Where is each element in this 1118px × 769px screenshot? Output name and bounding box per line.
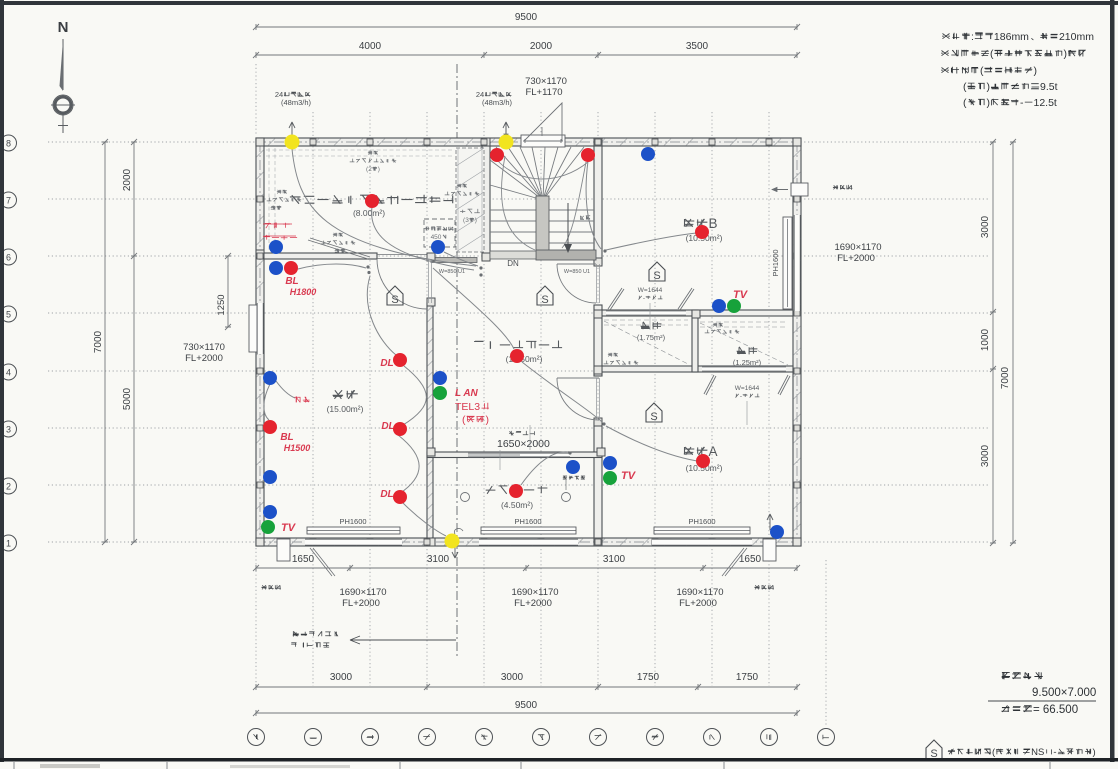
- svg-text:DL: DL: [380, 489, 393, 500]
- svg-text:FL+2000: FL+2000: [514, 598, 552, 609]
- svg-text:9.500×7.000: 9.500×7.000: [1032, 687, 1096, 699]
- svg-text:9500: 9500: [515, 12, 538, 23]
- svg-text:FL+2000: FL+2000: [342, 598, 380, 609]
- svg-text:(1.25m²): (1.25m²): [733, 358, 762, 367]
- svg-text:BL: BL: [280, 432, 293, 443]
- svg-text:1690×1170: 1690×1170: [834, 242, 881, 253]
- svg-text:9.5t: 9.5t: [1040, 81, 1058, 93]
- svg-text:(48m3/h): (48m3/h): [281, 98, 312, 107]
- svg-text:= 66.500: = 66.500: [1033, 704, 1078, 716]
- svg-text:7000: 7000: [1000, 366, 1011, 389]
- svg-text:3000: 3000: [501, 672, 524, 683]
- svg-text:PH1600: PH1600: [339, 517, 366, 526]
- svg-text:(1.75m²): (1.75m²): [637, 333, 666, 342]
- svg-text:PH1600: PH1600: [771, 249, 780, 276]
- svg-text:H1500: H1500: [284, 443, 311, 453]
- svg-text:1750: 1750: [736, 672, 759, 683]
- svg-text:-: -: [1053, 747, 1056, 758]
- svg-text:TV: TV: [621, 470, 637, 482]
- svg-text:1: 1: [6, 539, 11, 549]
- svg-text:W=850 U1: W=850 U1: [439, 269, 465, 275]
- svg-text:DL: DL: [380, 358, 393, 369]
- svg-text:(3: (3: [463, 217, 469, 224]
- svg-text:): ): [1064, 48, 1068, 60]
- svg-text:(48m3/h): (48m3/h): [482, 98, 513, 107]
- svg-text:(: (: [990, 48, 994, 60]
- svg-text:(: (: [462, 414, 466, 426]
- svg-text:S: S: [541, 294, 548, 306]
- svg-text:730×1170: 730×1170: [183, 342, 225, 353]
- svg-text:210mm: 210mm: [1059, 31, 1094, 43]
- svg-text:S: S: [653, 270, 660, 282]
- svg-text:3: 3: [6, 425, 11, 435]
- svg-text:TV: TV: [281, 522, 297, 534]
- svg-text:): ): [987, 97, 991, 109]
- svg-text:186mm: 186mm: [994, 31, 1029, 43]
- svg-text:1650: 1650: [739, 554, 762, 565]
- svg-text:1250: 1250: [216, 294, 227, 315]
- svg-text:PH1600: PH1600: [688, 517, 715, 526]
- svg-text:): ): [987, 81, 991, 93]
- svg-text:B: B: [708, 216, 717, 231]
- svg-text:1000: 1000: [980, 328, 991, 351]
- svg-text::: :: [971, 31, 974, 43]
- svg-text:2000: 2000: [530, 41, 553, 52]
- svg-text:5: 5: [6, 310, 11, 320]
- svg-text:3100: 3100: [603, 554, 626, 565]
- svg-text:FL+1170: FL+1170: [525, 87, 562, 98]
- svg-text:1650×2000: 1650×2000: [497, 438, 550, 450]
- svg-text:): ): [475, 217, 477, 224]
- svg-text:3100: 3100: [427, 554, 450, 565]
- svg-text:2: 2: [6, 482, 11, 492]
- svg-text:4000: 4000: [359, 41, 382, 52]
- svg-text:12.5t: 12.5t: [1034, 97, 1057, 109]
- svg-text:(: (: [963, 81, 967, 93]
- svg-text:): ): [1034, 65, 1038, 77]
- svg-text:W=1644: W=1644: [735, 385, 760, 392]
- svg-text:2000: 2000: [122, 168, 133, 191]
- svg-text:W=850 U1: W=850 U1: [564, 269, 590, 275]
- svg-text:3000: 3000: [980, 215, 991, 238]
- svg-text:DL: DL: [381, 421, 394, 432]
- svg-text:1650: 1650: [292, 554, 315, 565]
- svg-text:FL+2000: FL+2000: [837, 253, 875, 264]
- svg-text:PH1600: PH1600: [514, 517, 541, 526]
- svg-text:1690×1170: 1690×1170: [511, 587, 558, 598]
- svg-text:FL+2000: FL+2000: [185, 353, 223, 364]
- svg-text:730×1170: 730×1170: [525, 76, 567, 87]
- svg-text:3000: 3000: [330, 672, 353, 683]
- svg-text:(8.00m²): (8.00m²): [353, 208, 385, 218]
- svg-text:4: 4: [6, 368, 11, 378]
- svg-text:(4.50m²): (4.50m²): [501, 500, 533, 510]
- svg-text:S: S: [650, 411, 657, 423]
- svg-text:(: (: [963, 97, 967, 109]
- svg-text:7: 7: [6, 196, 11, 206]
- svg-text:): ): [486, 414, 490, 426]
- svg-text:H1800: H1800: [290, 287, 317, 297]
- svg-text:7000: 7000: [93, 330, 104, 353]
- svg-text:(2: (2: [366, 166, 372, 173]
- svg-text:1750: 1750: [637, 672, 660, 683]
- svg-text:): ): [1093, 747, 1096, 758]
- svg-text:9500: 9500: [515, 700, 538, 711]
- svg-text:S: S: [391, 294, 398, 306]
- svg-text:A: A: [708, 444, 717, 459]
- svg-text:NS: NS: [1031, 747, 1044, 758]
- svg-text:W=1644: W=1644: [638, 287, 663, 294]
- svg-text:8: 8: [6, 139, 11, 149]
- svg-text:-: -: [643, 295, 645, 302]
- svg-text:3500: 3500: [686, 41, 709, 52]
- svg-text:-: -: [1020, 97, 1024, 109]
- svg-text:1690×1170: 1690×1170: [339, 587, 386, 598]
- svg-text:FL+2000: FL+2000: [679, 598, 717, 609]
- svg-text:(15.00m²): (15.00m²): [327, 404, 364, 414]
- svg-text:450: 450: [431, 234, 442, 241]
- svg-text:TEL3: TEL3: [455, 401, 480, 413]
- svg-text:1690×1170: 1690×1170: [676, 587, 723, 598]
- svg-text:6: 6: [6, 253, 11, 263]
- svg-text:5000: 5000: [122, 387, 133, 410]
- svg-text:(: (: [980, 65, 984, 77]
- svg-text:BL: BL: [285, 276, 298, 287]
- svg-text:DN: DN: [507, 259, 519, 268]
- svg-text:L AN: L AN: [455, 388, 479, 399]
- svg-text:3000: 3000: [980, 444, 991, 467]
- svg-text:): ): [378, 166, 380, 173]
- svg-text:-: -: [740, 393, 742, 400]
- svg-text:N: N: [58, 19, 69, 36]
